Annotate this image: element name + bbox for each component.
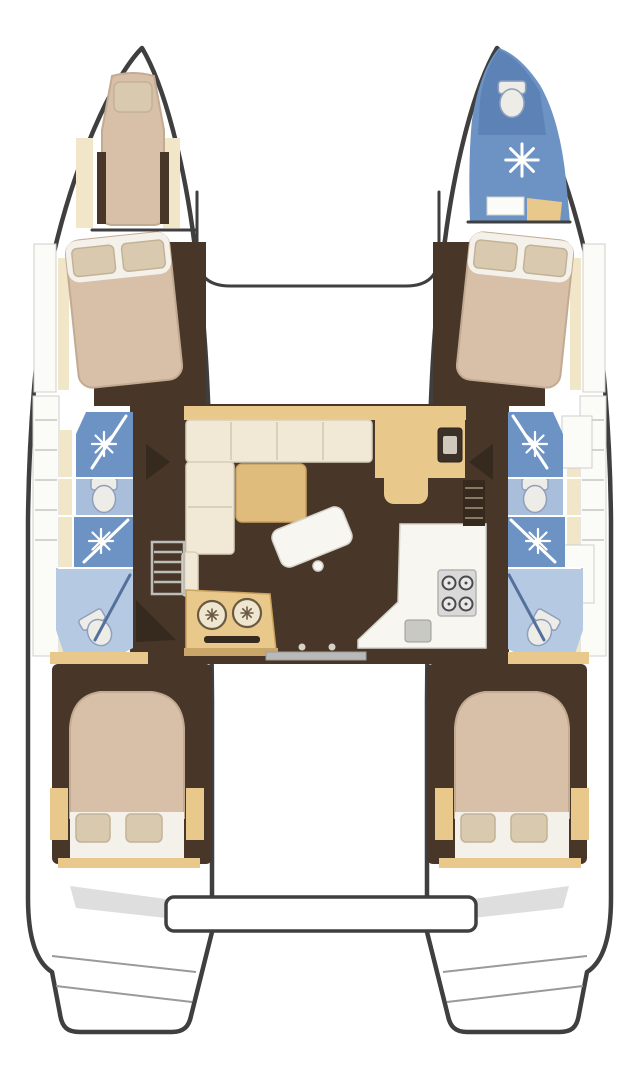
unit-base	[184, 648, 278, 656]
aft-crossbeam-platform	[166, 897, 476, 931]
bed-pillow	[76, 814, 110, 842]
vanity-counter	[527, 198, 562, 222]
galley-sink-unit	[184, 590, 278, 656]
shower-spray-icon	[92, 432, 116, 456]
table-leg	[313, 561, 323, 571]
port-aft-cabin	[50, 652, 212, 868]
nacelle-front-line	[197, 192, 439, 286]
bed-pillow	[71, 245, 116, 277]
toilet-icon	[498, 81, 525, 117]
starboard-bathrooms	[506, 396, 606, 660]
saloon-table	[236, 464, 306, 522]
counter-sink	[405, 620, 431, 642]
shower-spray-icon	[89, 529, 113, 553]
bed-pillow	[461, 814, 495, 842]
vanity-sink	[562, 416, 592, 468]
berth-wall	[160, 152, 169, 224]
starboard-aft-cabin	[427, 652, 589, 868]
side-locker	[571, 788, 589, 840]
bed-mattress	[70, 692, 184, 818]
drawer-slot	[204, 636, 260, 643]
shower-spray-icon	[526, 529, 550, 553]
side-deck	[583, 244, 605, 392]
appliance-inner	[443, 436, 457, 454]
bed-pillow	[121, 240, 166, 272]
shower-spray-icon	[523, 432, 547, 456]
round-sink-icon	[198, 601, 226, 629]
port-bathrooms	[33, 396, 133, 660]
side-deck	[34, 244, 56, 392]
door-handle	[329, 644, 336, 651]
port-forward-bed	[65, 231, 184, 389]
bed-pillow	[511, 814, 547, 842]
shower-spray-icon	[506, 144, 538, 176]
side-locker	[186, 788, 204, 840]
toilet-icon	[91, 478, 117, 513]
catamaran-floorplan	[0, 0, 639, 1080]
side-deck	[33, 396, 59, 656]
sofa-backrest	[184, 406, 466, 420]
companionway-steps-starboard	[463, 480, 485, 526]
side-locker	[435, 788, 453, 840]
berth-wall	[97, 152, 106, 224]
bulkhead-trim	[439, 858, 581, 868]
bed-mattress	[455, 692, 569, 818]
round-sink-icon	[233, 599, 261, 627]
stove	[438, 570, 476, 616]
floorplan-svg	[0, 0, 639, 1080]
berth-pillow	[114, 82, 152, 112]
bed-pillow	[473, 240, 518, 272]
bed-pillow	[126, 814, 162, 842]
bed-pillow	[523, 245, 568, 277]
saloon	[136, 404, 508, 664]
side-locker	[50, 788, 68, 840]
sink-counter	[487, 197, 524, 215]
sofa-cushions-top	[186, 420, 372, 462]
deck-trim	[76, 138, 93, 228]
toilet-icon	[522, 478, 548, 513]
bulkhead-trim	[58, 858, 200, 868]
starboard-forward-bed	[456, 231, 575, 389]
door-handle	[299, 644, 306, 651]
